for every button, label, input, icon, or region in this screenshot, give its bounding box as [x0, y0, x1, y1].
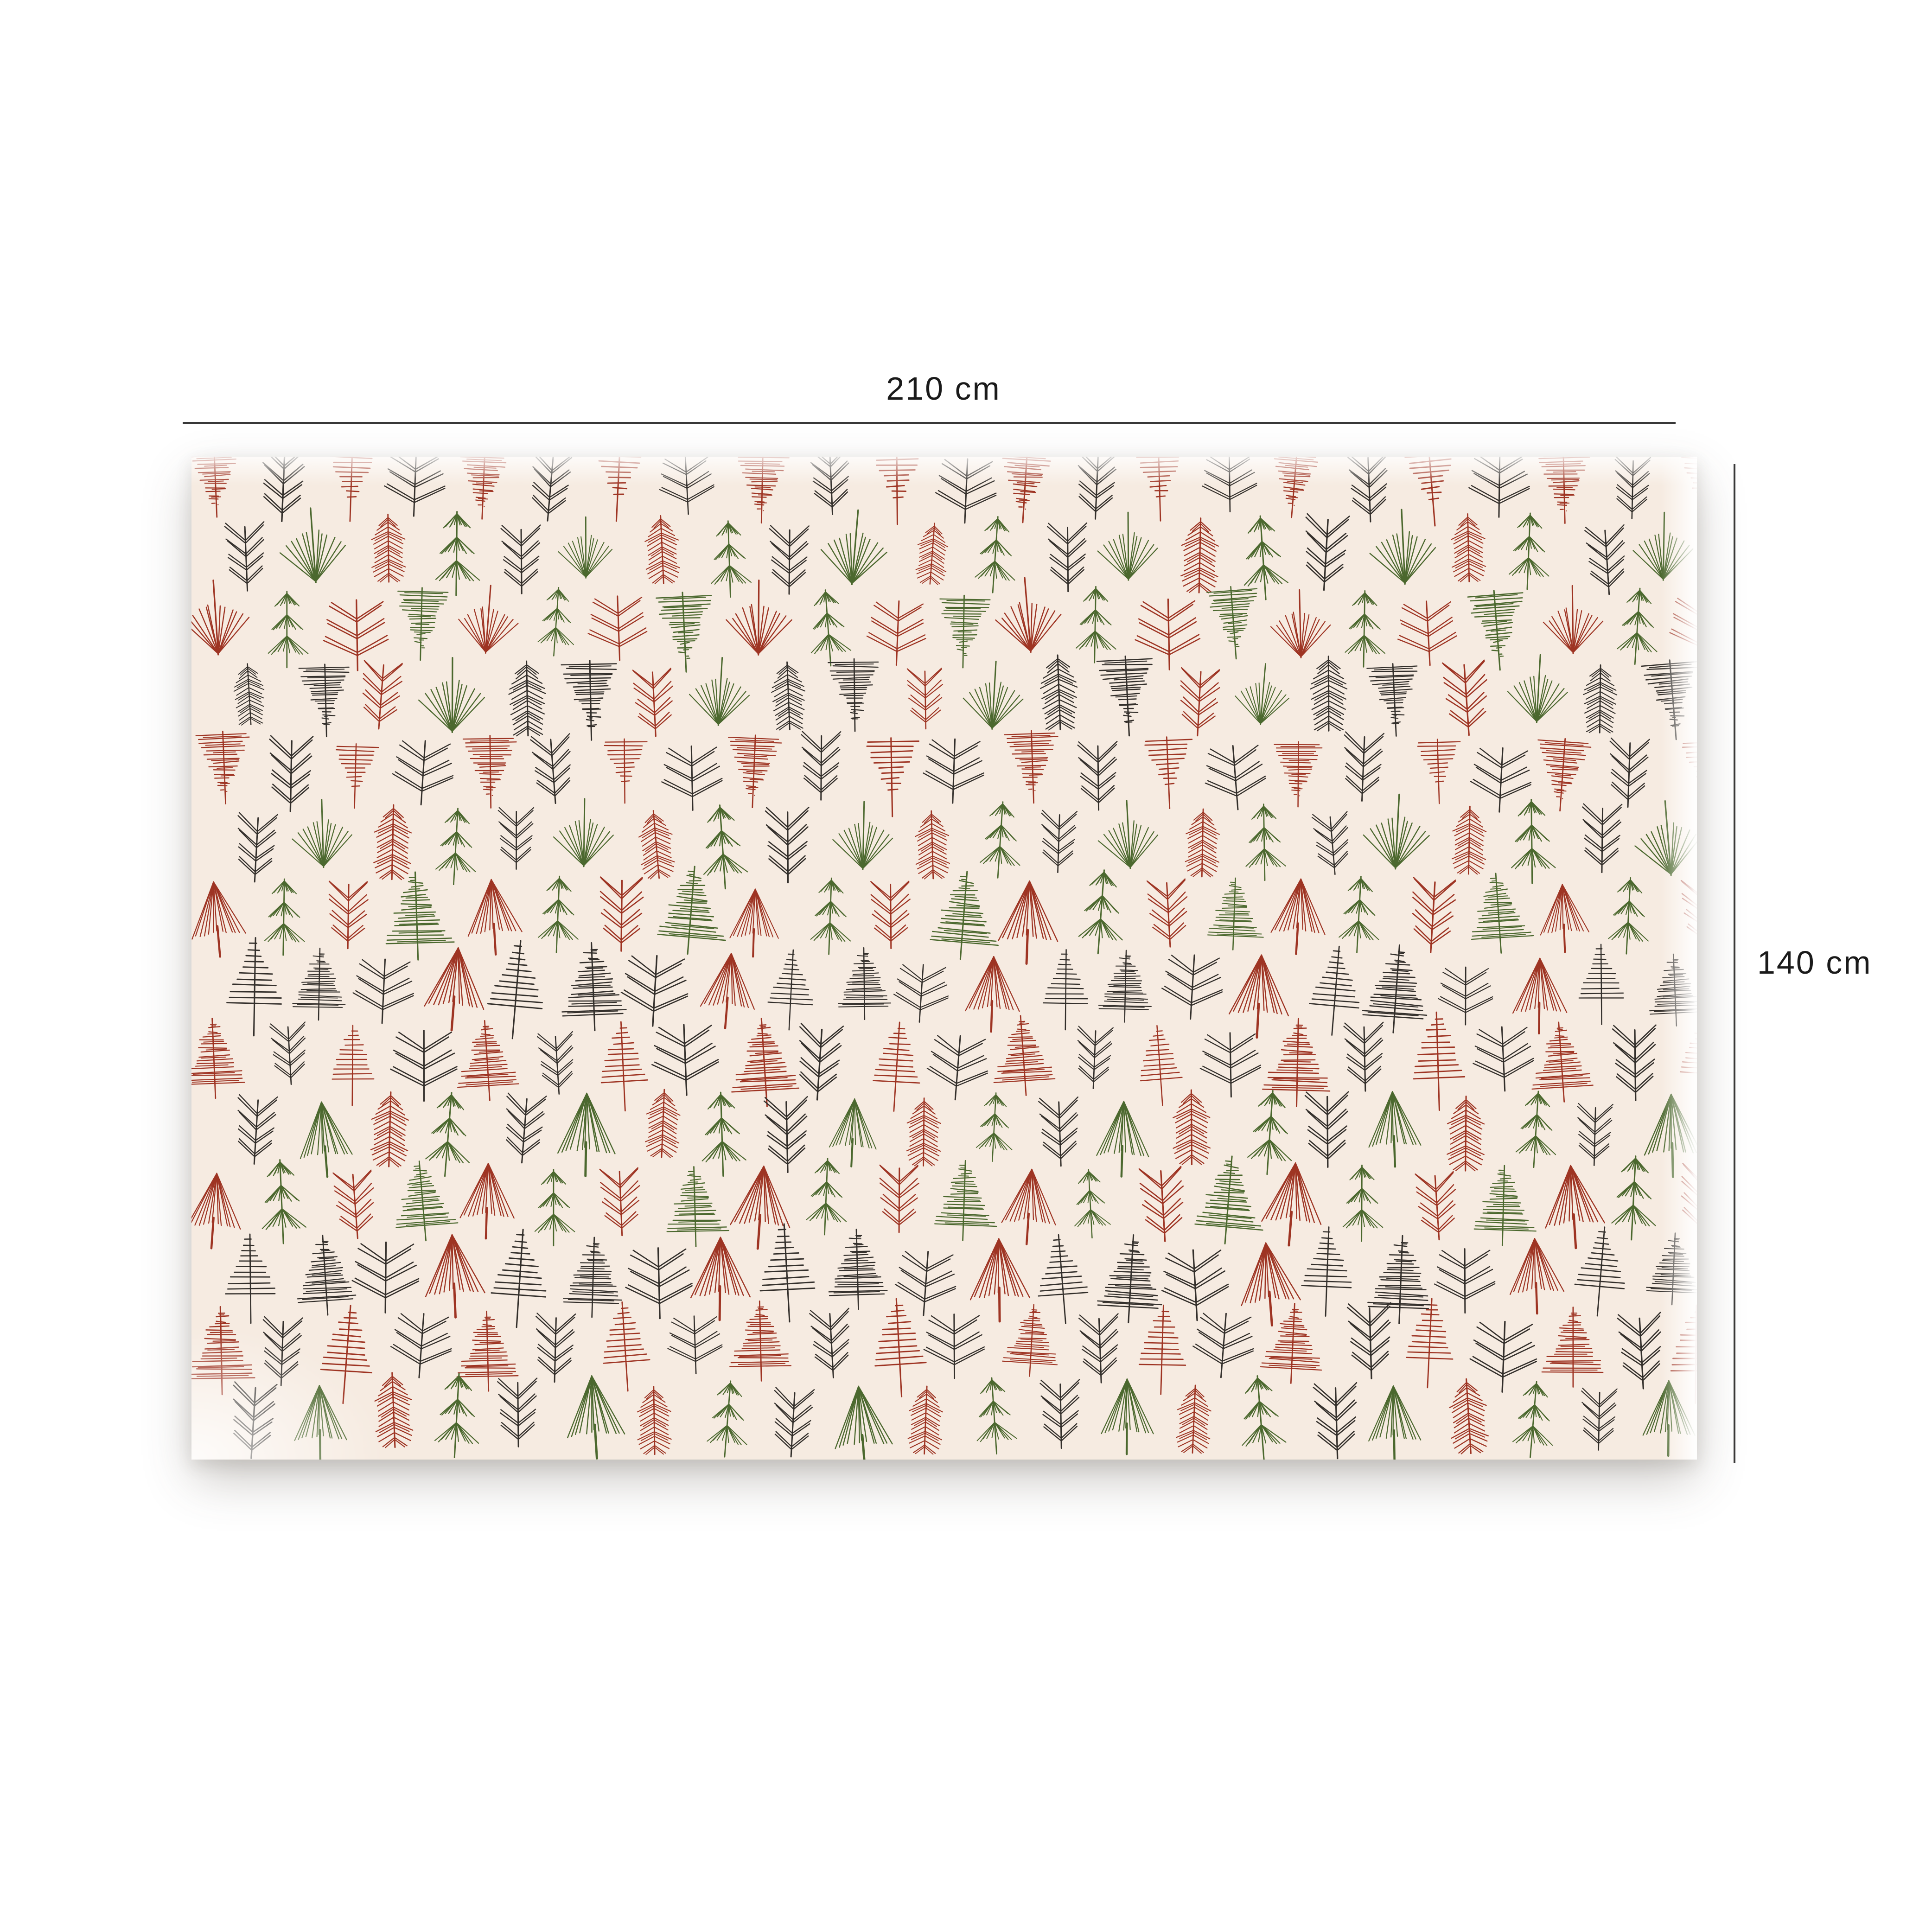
width-dimension-label: 210 cm [886, 372, 1001, 405]
height-dimension-label: 140 cm [1757, 946, 1872, 979]
product-dimension-mockup: 210 cm 140 cm [0, 0, 1932, 1932]
width-dimension-line [183, 422, 1676, 424]
fabric-swatch [191, 457, 1697, 1460]
christmas-tree-pattern [191, 457, 1697, 1460]
height-dimension-line [1734, 464, 1735, 1463]
